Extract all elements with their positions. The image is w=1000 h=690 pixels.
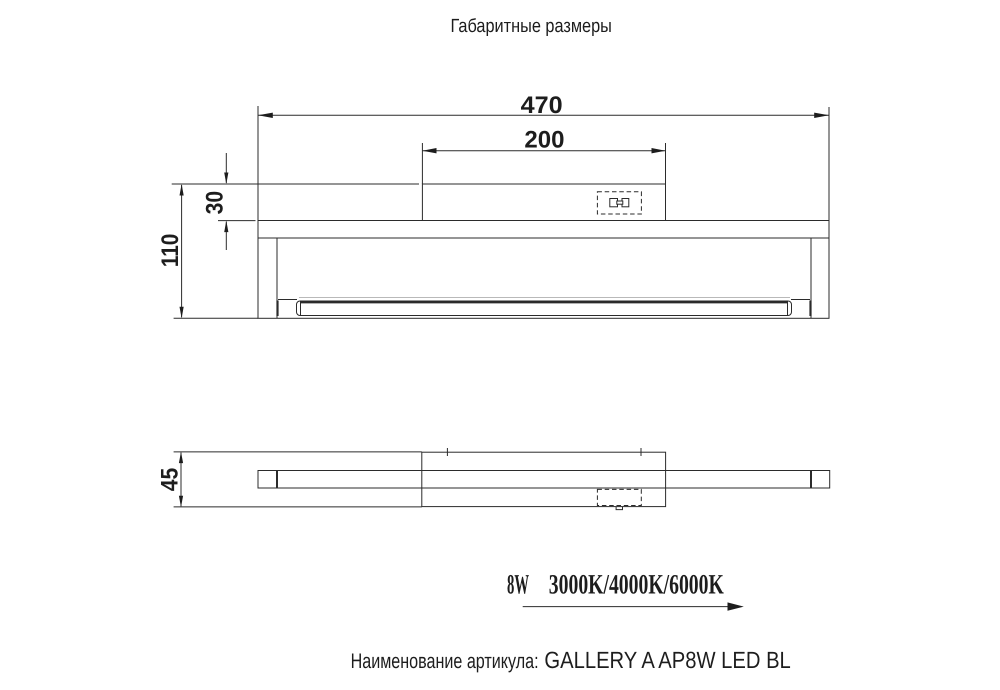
svg-text:Габаритные размеры: Габаритные размеры [451,16,612,37]
svg-text:8W: 8W [507,570,529,601]
svg-text:45: 45 [157,468,184,492]
svg-text:110: 110 [157,234,184,268]
svg-text:30: 30 [201,191,228,215]
svg-text:3000K/4000K/6000K: 3000K/4000K/6000K [549,570,724,601]
svg-text:470: 470 [521,92,563,119]
svg-text:GALLERY A AP8W LED BL: GALLERY A AP8W LED BL [544,647,790,673]
svg-text:Наименование артикула:: Наименование артикула: [351,650,539,673]
svg-text:200: 200 [524,126,564,153]
